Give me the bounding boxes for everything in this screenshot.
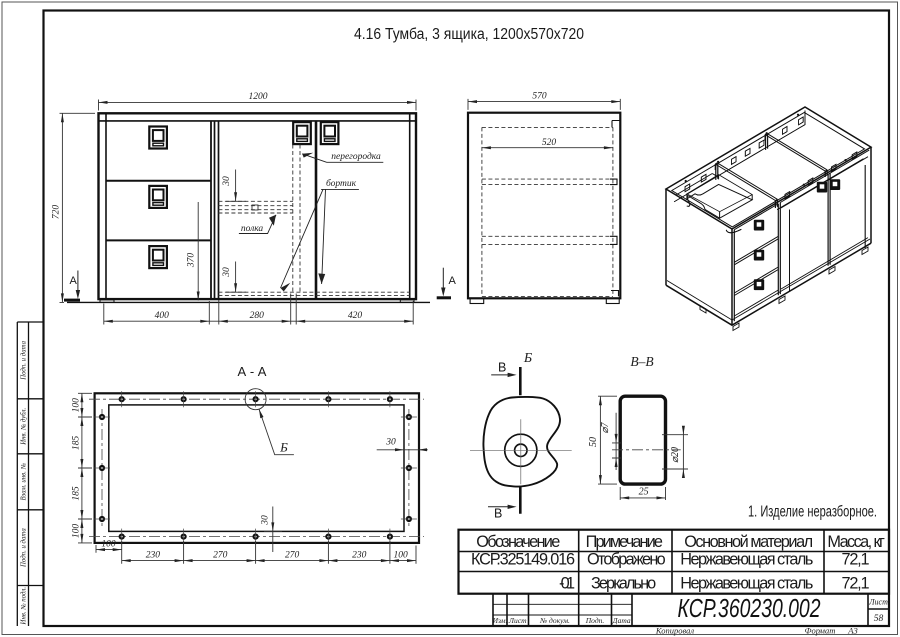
svg-text:⌀7: ⌀7 bbox=[600, 421, 611, 433]
svg-text:1. Изделие неразборное.: 1. Изделие неразборное. bbox=[748, 504, 877, 521]
svg-text:Взам. инв. №: Взам. инв. № bbox=[21, 463, 28, 500]
svg-text:Обозначение: Обозначение bbox=[476, 533, 560, 551]
svg-text:А3: А3 bbox=[847, 626, 857, 636]
svg-text:Подп.: Подп. bbox=[585, 616, 605, 625]
svg-text:230: 230 bbox=[146, 551, 161, 561]
svg-text:30: 30 bbox=[222, 267, 232, 278]
svg-text:30: 30 bbox=[385, 437, 396, 447]
svg-text:270: 270 bbox=[285, 551, 300, 561]
svg-text:бортик: бортик bbox=[326, 178, 357, 189]
svg-text:1200: 1200 bbox=[249, 92, 268, 102]
svg-text:Масса, кг: Масса, кг bbox=[827, 533, 885, 551]
svg-text:-01: -01 bbox=[559, 575, 575, 593]
svg-text:30: 30 bbox=[261, 515, 271, 526]
svg-text:50: 50 bbox=[588, 437, 599, 447]
svg-text:185: 185 bbox=[72, 436, 82, 451]
svg-text:100: 100 bbox=[101, 540, 116, 550]
svg-text:30: 30 bbox=[222, 176, 232, 187]
svg-text:Зеркально: Зеркально bbox=[591, 575, 656, 593]
svg-text:Б: Б bbox=[279, 440, 288, 455]
svg-text:А - А: А - А bbox=[238, 364, 267, 379]
svg-text:Отображено: Отображено bbox=[587, 551, 666, 569]
svg-text:Б: Б bbox=[523, 351, 532, 366]
svg-text:Инв. № дубл.: Инв. № дубл. bbox=[21, 407, 28, 445]
svg-text:270: 270 bbox=[213, 551, 228, 561]
svg-text:570: 570 bbox=[532, 92, 547, 102]
svg-text:Нержавеющая сталь: Нержавеющая сталь bbox=[680, 551, 813, 569]
svg-text:A: A bbox=[70, 275, 78, 287]
svg-text:полка: полка bbox=[241, 224, 264, 234]
svg-text:Лист: Лист bbox=[508, 616, 527, 625]
svg-text:№ докум.: № докум. bbox=[539, 616, 570, 625]
svg-text:58: 58 bbox=[874, 614, 884, 624]
svg-text:Примечание: Примечание bbox=[586, 533, 663, 551]
svg-text:25: 25 bbox=[639, 487, 649, 498]
svg-text:КСР.360230.002: КСР.360230.002 bbox=[678, 593, 821, 623]
svg-text:72,1: 72,1 bbox=[842, 575, 870, 593]
svg-text:100: 100 bbox=[72, 524, 82, 539]
svg-text:В: В bbox=[494, 507, 502, 521]
svg-text:100: 100 bbox=[72, 398, 82, 413]
svg-text:Основной материал: Основной материал bbox=[684, 533, 813, 551]
svg-text:Изм.: Изм. bbox=[492, 616, 508, 625]
svg-text:720: 720 bbox=[52, 205, 62, 220]
svg-text:520: 520 bbox=[542, 138, 557, 148]
svg-text:Формат: Формат bbox=[805, 626, 836, 636]
svg-text:A: A bbox=[449, 275, 457, 287]
svg-text:⌀20: ⌀20 bbox=[670, 447, 681, 463]
svg-text:400: 400 bbox=[155, 311, 170, 321]
svg-text:100: 100 bbox=[393, 551, 408, 561]
svg-text:В: В bbox=[498, 361, 506, 375]
svg-text:Нержавеющая сталь: Нержавеющая сталь bbox=[680, 575, 813, 593]
svg-text:Инв. № подл.: Инв. № подл. bbox=[21, 587, 28, 626]
svg-text:В–В: В–В bbox=[630, 354, 653, 369]
svg-text:Подп. и дата: Подп. и дата bbox=[21, 528, 28, 568]
svg-text:185: 185 bbox=[72, 486, 82, 501]
svg-text:4.16 Тумба, 3 ящика, 1200х570х: 4.16 Тумба, 3 ящика, 1200х570х720 bbox=[354, 26, 584, 43]
svg-text:280: 280 bbox=[250, 311, 265, 321]
svg-text:Копировал: Копировал bbox=[655, 626, 694, 636]
svg-text:Дата: Дата bbox=[612, 616, 631, 625]
svg-text:Подп. и дата: Подп. и дата bbox=[21, 340, 28, 380]
svg-text:420: 420 bbox=[348, 311, 363, 321]
svg-text:Лист: Лист bbox=[868, 598, 888, 607]
svg-text:72,1: 72,1 bbox=[842, 551, 870, 569]
svg-text:370: 370 bbox=[187, 253, 197, 269]
svg-text:230: 230 bbox=[352, 551, 367, 561]
svg-text:перегородка: перегородка bbox=[331, 151, 381, 162]
svg-text:КСР.325149.016: КСР.325149.016 bbox=[471, 551, 575, 569]
